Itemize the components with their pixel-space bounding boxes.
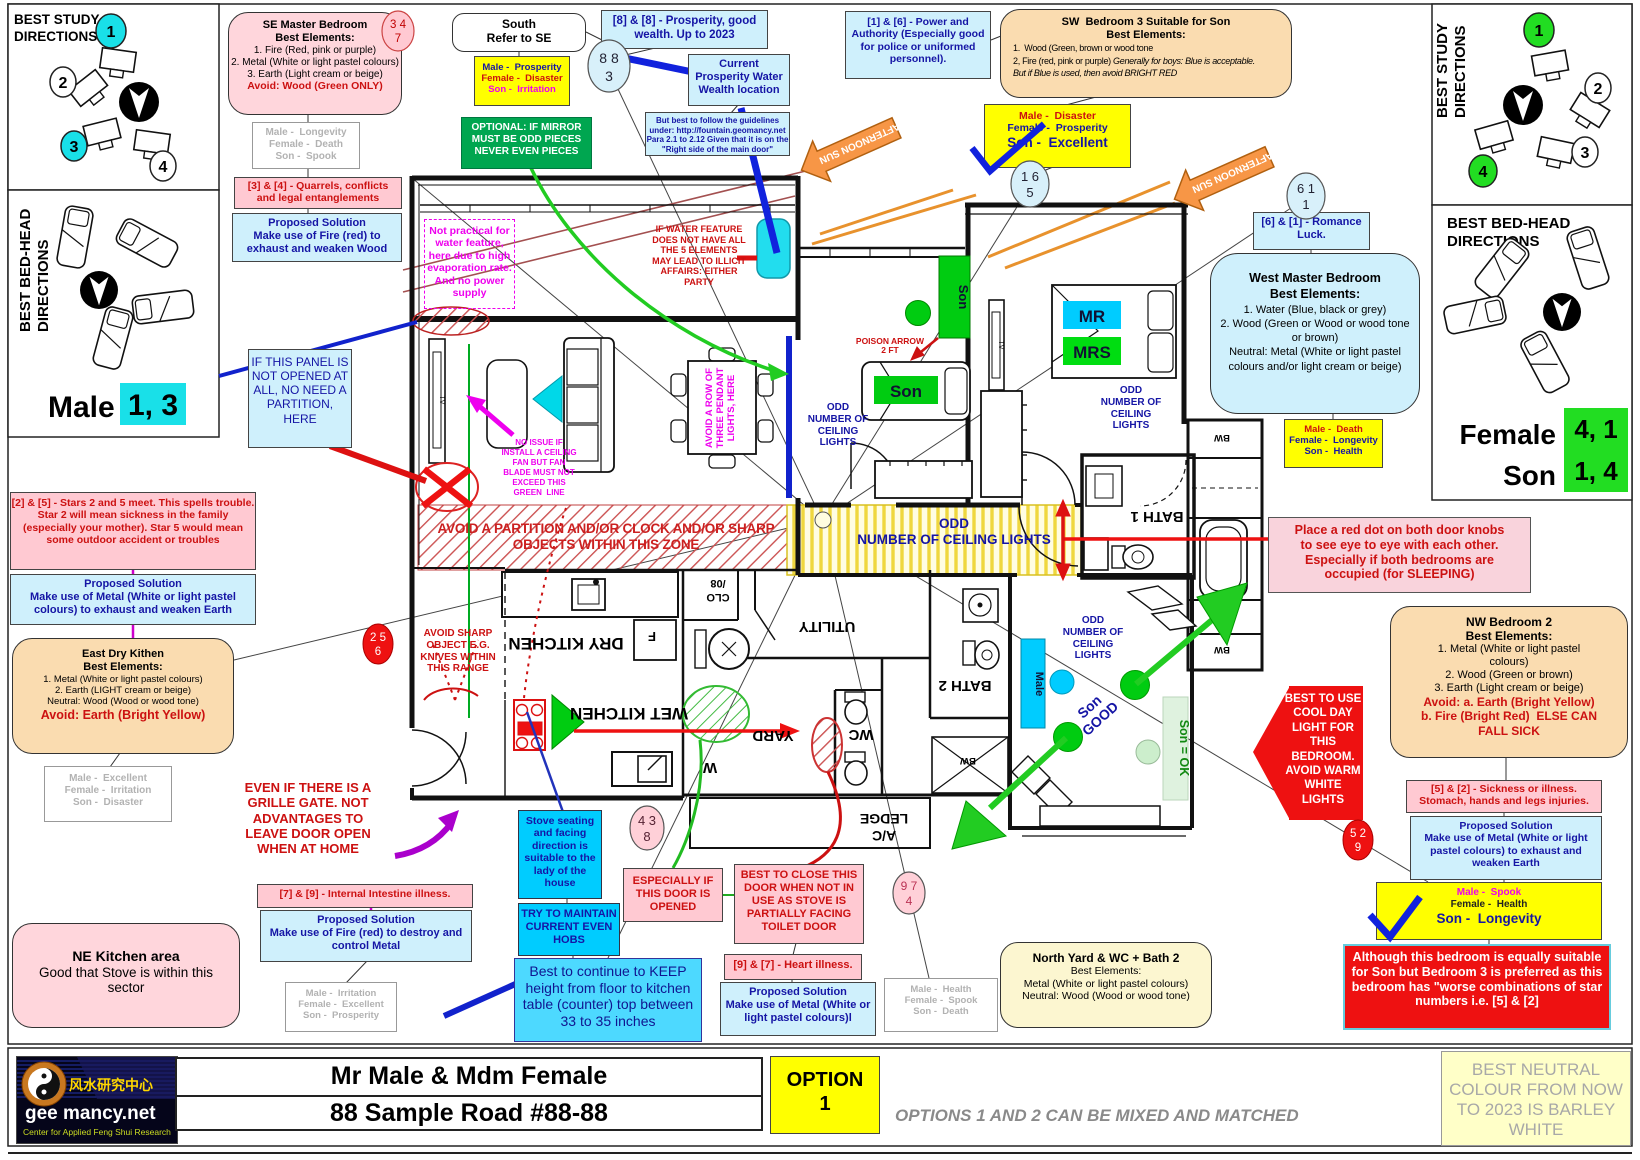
svg-text:DRY KITCHEN: DRY KITCHEN xyxy=(508,634,623,653)
svg-text:DIRECTIONS: DIRECTIONS xyxy=(1452,25,1469,118)
svg-text:Male: Male xyxy=(48,391,115,424)
svg-text:BEST BED-HEAD: BEST BED-HEAD xyxy=(17,208,34,332)
svg-text:风水研究中心: 风水研究中心 xyxy=(69,1077,153,1093)
svg-text:BEST STUDY: BEST STUDY xyxy=(1434,23,1451,118)
svg-text:AVOID A ROW OF: AVOID A ROW OF xyxy=(704,368,715,448)
svg-text:W: W xyxy=(702,759,717,776)
svg-text:1: 1 xyxy=(107,24,116,41)
svg-text:4: 4 xyxy=(159,159,168,176)
svg-text:Son = OK: Son = OK xyxy=(1177,720,1191,777)
svg-text:BEST BED-HEAD: BEST BED-HEAD xyxy=(1447,215,1571,232)
svg-text:4, 1: 4, 1 xyxy=(1574,414,1617,444)
svg-text:2: 2 xyxy=(1594,81,1603,98)
svg-text:gee mancy.net: gee mancy.net xyxy=(25,1103,156,1124)
svg-text:WET KITCHEN: WET KITCHEN xyxy=(570,704,688,723)
svg-text:MRS: MRS xyxy=(1073,343,1111,362)
svg-text:TV: TV xyxy=(438,396,445,405)
svg-text:BATH 1: BATH 1 xyxy=(1130,508,1183,525)
svg-text:WC: WC xyxy=(848,726,873,743)
svg-text:DIRECTIONS: DIRECTIONS xyxy=(35,239,52,332)
svg-text:MR: MR xyxy=(1079,307,1105,326)
svg-text:BW: BW xyxy=(960,755,976,766)
svg-text:1, 3: 1, 3 xyxy=(128,389,178,422)
svg-text:YARD: YARD xyxy=(752,727,793,744)
svg-text:CLO: CLO xyxy=(706,591,730,603)
svg-text:Son: Son xyxy=(956,285,971,310)
svg-text:2: 2 xyxy=(59,75,68,92)
svg-text:4: 4 xyxy=(1479,164,1488,181)
svg-text:LIGHTS, HERE: LIGHTS, HERE xyxy=(726,375,737,442)
svg-text:BEST STUDY: BEST STUDY xyxy=(14,12,100,27)
svg-text:BATH 2: BATH 2 xyxy=(938,677,991,694)
svg-text:3: 3 xyxy=(1581,145,1590,162)
svg-text:TV: TV xyxy=(997,341,1004,350)
svg-text:F: F xyxy=(648,629,656,644)
svg-text:THREE PENDANT: THREE PENDANT xyxy=(715,367,726,448)
svg-text:Center for Applied Feng Shui R: Center for Applied Feng Shui Research xyxy=(23,1127,171,1137)
svg-text:A/C: A/C xyxy=(872,828,896,844)
svg-text:Son: Son xyxy=(890,382,922,401)
svg-text:DIRECTIONS: DIRECTIONS xyxy=(14,29,97,44)
svg-text:BW: BW xyxy=(1214,432,1230,443)
svg-text:1: 1 xyxy=(1535,23,1544,40)
svg-text:BW: BW xyxy=(1214,644,1230,655)
svg-text:LEDGE: LEDGE xyxy=(860,811,908,827)
svg-text:Female: Female xyxy=(1460,419,1557,450)
svg-text:3: 3 xyxy=(70,139,79,156)
svg-text:/08: /08 xyxy=(710,577,725,589)
svg-text:UTILITY: UTILITY xyxy=(799,618,856,635)
svg-text:Son: Son xyxy=(1503,460,1556,491)
svg-text:1, 4: 1, 4 xyxy=(1574,456,1618,486)
svg-text:Male: Male xyxy=(1033,672,1045,696)
